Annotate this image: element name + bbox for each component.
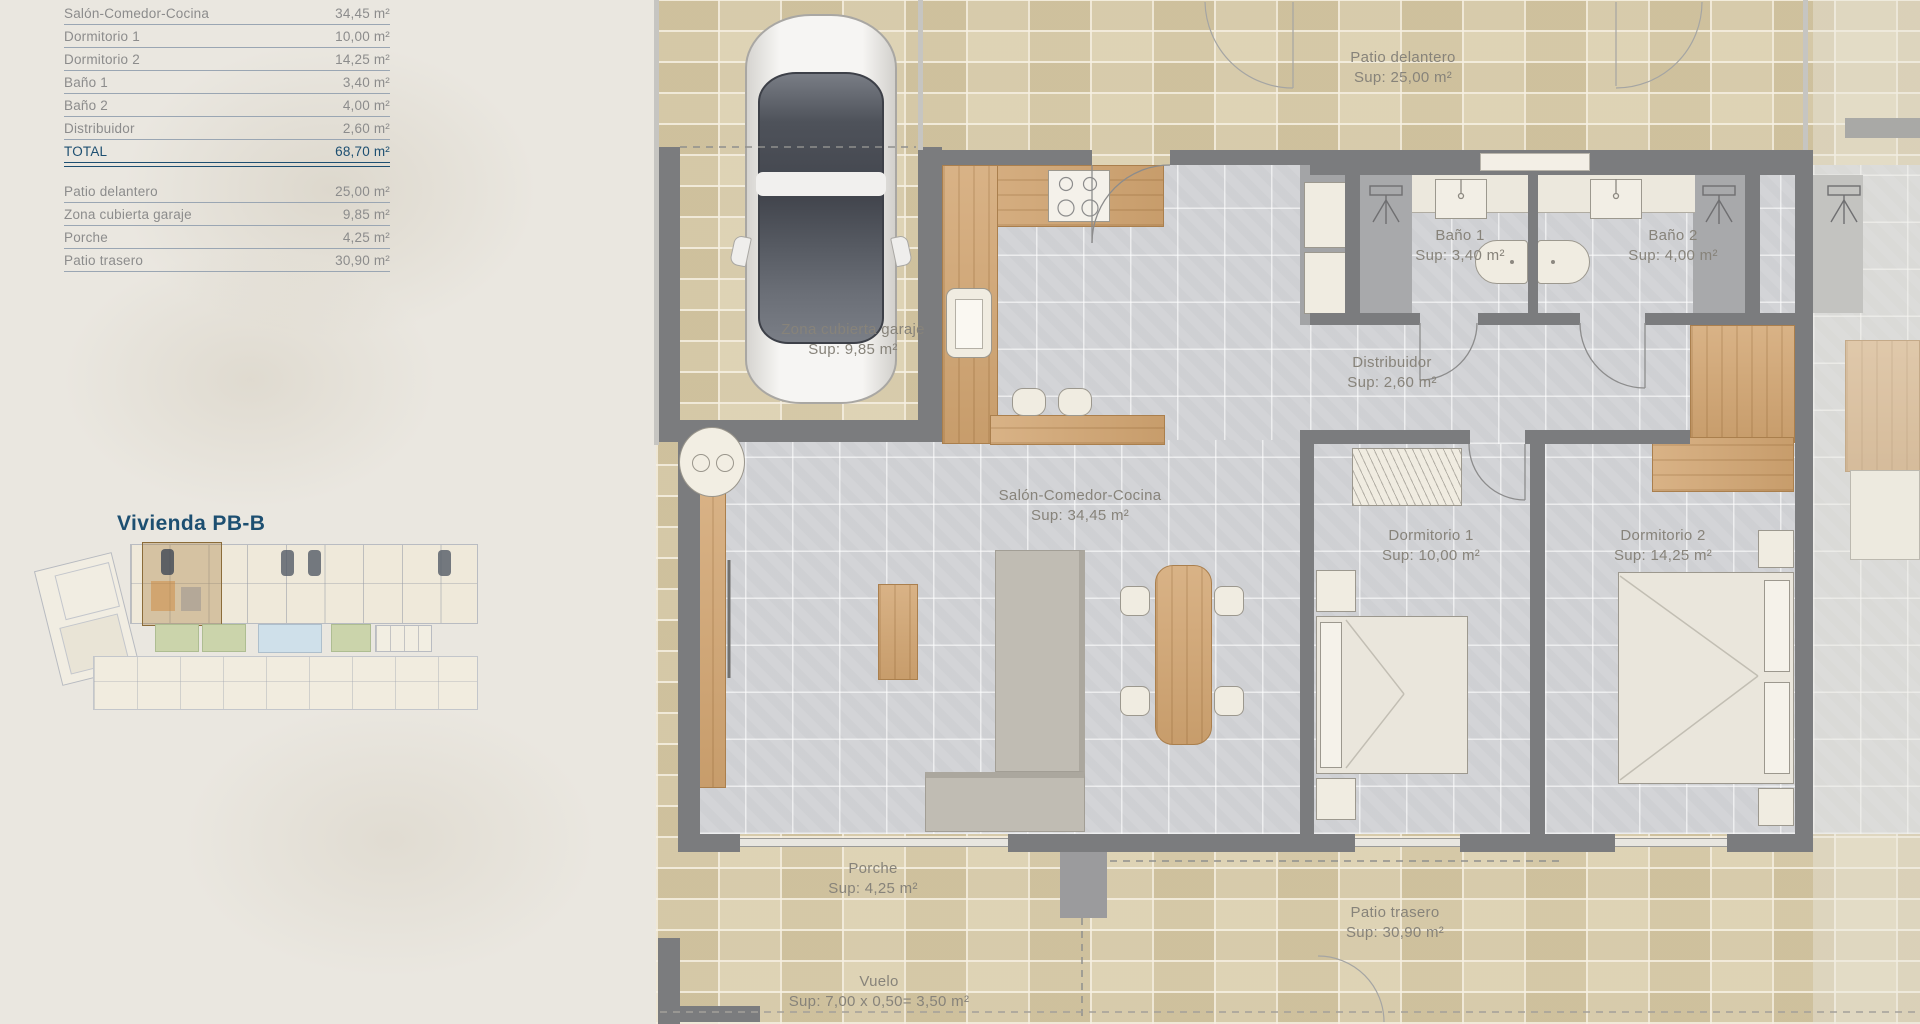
bed-pillow [1764,682,1790,774]
room-name: Patio trasero [1351,904,1440,921]
room-sup: Sup: 10,00 m² [1382,547,1480,564]
plan-sheet: Salón-Comedor-Cocina34,45 m² Dormitorio … [0,0,1920,1024]
room-sup: Sup: 30,90 m² [1346,924,1444,941]
room-name: Vuelo [859,973,898,990]
room-sup: Sup: 7,00 x 0,50= 3,50 m² [789,993,970,1010]
garage-planter [679,427,745,497]
sliding-door-living [740,838,1008,847]
wall-bedroom1-bedroom2 [1530,430,1545,834]
living-sideboard [696,482,726,788]
label-dormitorio2: Dormitorio 2 Sup: 14,25 m² [1614,526,1712,566]
wall-bedrooms-top-a [1312,430,1470,444]
room-sup: Sup: 4,25 m² [828,880,917,897]
label-salon: Salón-Comedor-Cocina Sup: 34,45 m² [999,486,1162,526]
label-patio-trasero: Patio trasero Sup: 30,90 m² [1346,903,1444,943]
porch-pillar [1060,852,1107,918]
dining-chair [1120,686,1150,716]
label-zona-garaje: Zona cubierta garaje Sup: 9,85 m² [781,320,925,360]
neighbor-fade-overlay [1813,0,1920,1024]
room-sup: Sup: 4,00 m² [1628,247,1717,264]
wall-bedrooms-top-b [1525,430,1690,444]
kitchen-bar-counter [990,415,1165,445]
dining-table [1155,565,1212,745]
bar-stool [1058,388,1092,416]
nightstand [1316,570,1356,612]
wall-front-a [942,150,1092,165]
room-sup: Sup: 34,45 m² [1031,507,1129,524]
car-roof-band [756,172,886,196]
room-sup: Sup: 25,00 m² [1354,69,1452,86]
room-sup: Sup: 3,40 m² [1415,247,1504,264]
nightstand [1758,530,1794,568]
planter-circle [692,454,710,472]
room-name: Dormitorio 2 [1620,527,1705,544]
bedroom1-wardrobe [1352,448,1462,506]
nightstand [1316,778,1356,820]
wall-bath1-left [1345,165,1360,325]
label-bano1: Baño 1 Sup: 3,40 m² [1415,226,1504,266]
bath1-shower [1360,175,1412,313]
bed-pillow [1320,622,1342,768]
wall-front-b [1170,150,1310,165]
bath2-sink [1590,179,1642,219]
wall-bath2-right [1745,165,1760,325]
bed-pillow [1764,580,1790,672]
window-bedroom1 [1355,838,1460,847]
dining-chair [1120,586,1150,616]
room-name: Patio delantero [1350,49,1455,66]
room-name: Distribuidor [1352,354,1431,371]
kitchen-sink [946,288,992,358]
label-vuelo: Vuelo Sup: 7,00 x 0,50= 3,50 m² [789,972,970,1012]
wall-rear-e [1727,834,1813,852]
room-name: Zona cubierta garaje [781,321,925,338]
plot-line-mid [918,0,923,150]
room-name: Salón-Comedor-Cocina [999,487,1162,504]
room-sup: Sup: 2,60 m² [1347,374,1436,391]
room-name: Baño 1 [1435,227,1484,244]
kitchen-sink-basin [955,299,983,349]
room-name: Baño 2 [1648,227,1697,244]
wall-baths-center [1528,175,1538,325]
coffee-table [878,584,918,680]
plot-line-right [1803,0,1808,150]
room-sup: Sup: 14,25 m² [1614,547,1712,564]
label-patio-delantero: Patio delantero Sup: 25,00 m² [1350,48,1455,88]
nightstand [1758,788,1794,826]
bar-stool [1012,388,1046,416]
label-porche: Porche Sup: 4,25 m² [828,859,917,899]
wall-garage-kitchen [918,147,942,442]
wall-rear-b [1008,834,1108,852]
label-bano2: Baño 2 Sup: 4,00 m² [1628,226,1717,266]
bedroom2-wardrobe [1652,437,1794,492]
car-roof-glass [758,72,884,344]
bedroom2-dressing-floor [1690,325,1795,443]
wall-baths-bottom-a [1310,313,1420,325]
wall-living-bedroom1 [1300,430,1314,834]
room-name: Porche [848,860,897,877]
room-name: Dormitorio 1 [1388,527,1473,544]
wall-baths-bottom-b [1478,313,1580,325]
sofa-chaise [925,772,1085,832]
wall-plot-bottom-left-h [658,1006,760,1022]
dining-chair [1214,586,1244,616]
wall-garage-left [658,147,680,440]
floor-plan: Patio delantero Sup: 25,00 m² Zona cubie… [0,0,1920,1024]
wall-rear-d [1460,834,1615,852]
wall-baths-bottom-c [1645,313,1813,325]
sofa [995,550,1085,772]
plot-line-left [654,0,659,445]
baths-window [1480,153,1590,171]
wall-rear-a [678,834,740,852]
planter-circle [716,454,734,472]
wall-party-right [1795,150,1813,834]
bath1-sink [1435,179,1487,219]
wall-rear-c [1108,834,1355,852]
bath2-toilet [1537,240,1590,284]
dining-chair [1214,686,1244,716]
label-distribuidor: Distribuidor Sup: 2,60 m² [1347,353,1436,393]
label-dormitorio1: Dormitorio 1 Sup: 10,00 m² [1382,526,1480,566]
cooktop [1048,170,1110,222]
room-sup: Sup: 9,85 m² [808,341,897,358]
window-bedroom2 [1615,838,1727,847]
